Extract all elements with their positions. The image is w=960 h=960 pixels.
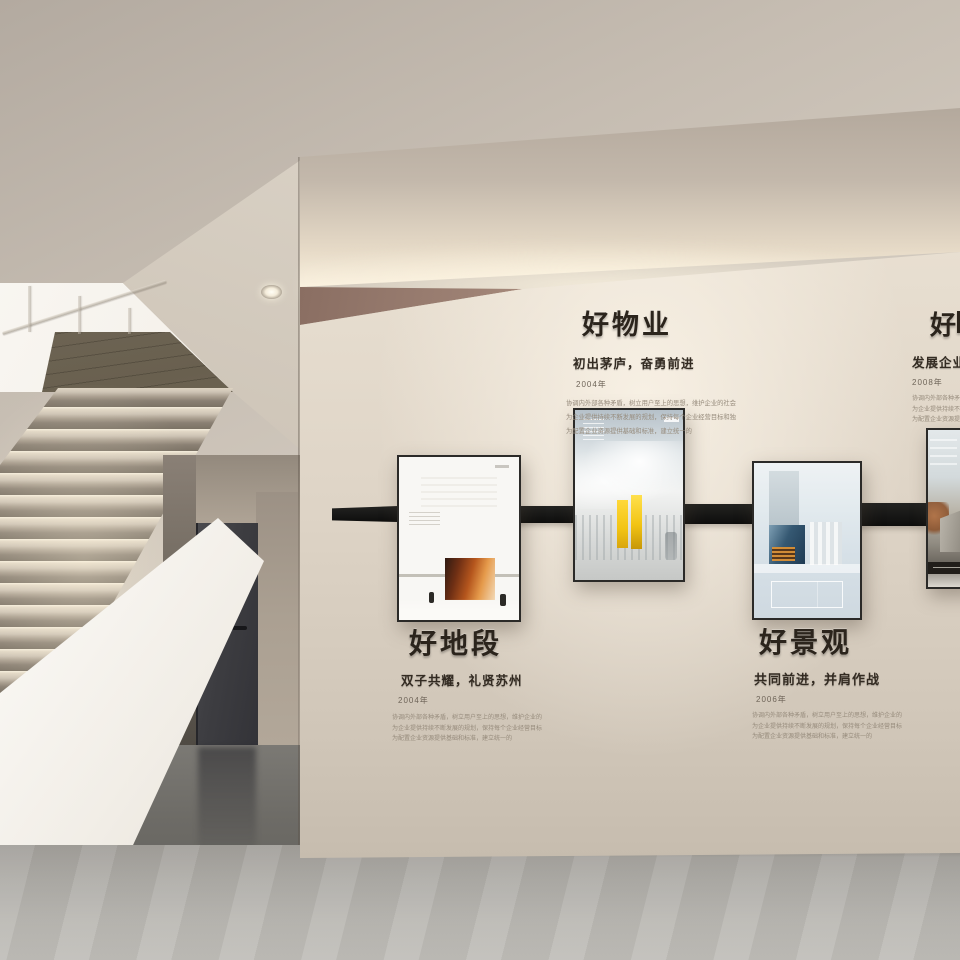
door-handle [232,626,247,630]
interior-render: 好物业 初出茅庐，奋勇前进 2004年 协调内外部各种矛盾，树立用户至上的思想，… [0,0,960,960]
wall-panel [256,492,298,745]
section-year: 2008年 [912,377,960,388]
poster-yellow-tower-left [617,500,628,548]
poster-caption-text [933,567,960,568]
section-year: 2004年 [576,379,736,390]
poster-water-reflection [754,564,860,573]
stair-step [0,407,240,429]
stairwell-scene [0,0,307,960]
section-title: 好地段 [409,622,542,662]
poster-caption-block [409,512,440,527]
section-haodiduan: 好地段 双子共耀，礼贤苏州 2004年 协调内外部各种矛盾，树立用户至上的思想，… [392,622,542,745]
railing-post [28,286,31,332]
poster-diagram-table [771,581,843,608]
section-subtitle: 共同前进，并肩作战 [754,669,902,688]
section-subtitle: 初出茅庐，奋勇前进 [573,353,736,372]
poster-clouds [575,441,683,509]
poster-logo-mark [495,465,509,468]
section-body: 协调内外部各种矛盾，树立用户至上的思想，维护企业的社会形象 为企业提供持续不断发… [392,713,542,745]
section-title: 好景观 [759,621,902,661]
timeline-band [683,504,753,524]
section-subtitle: 发展企业 [912,352,960,371]
poster-caption-band [928,562,960,575]
section-haowuye: 好物业 初出茅庐，奋勇前进 2004年 协调内外部各种矛盾，树立用户至上的思想，… [566,303,736,439]
timeline-band [332,506,398,522]
poster-figure [500,594,506,606]
section-title: 好 [930,305,960,342]
poster-amber-stairs [772,547,794,562]
section-year: 2006年 [756,694,902,705]
blue-stair-interior-poster [752,461,862,620]
poster-white-drapes [810,522,842,565]
recessed-downlight [261,285,282,299]
poster-yellow-tower-right [631,495,642,549]
poster-red-building-photo [445,558,495,600]
section-subtitle: 双子共耀，礼贤苏州 [401,670,542,689]
section-body: 协调内外部各种矛盾，树立用户至上的思想 为企业提供持续不断发展的规划，保持每个企… [912,394,960,426]
timeline-band [858,503,926,526]
railing-post [128,308,131,334]
concrete-floor [0,845,960,960]
poster-figure [429,592,434,603]
section-body: 协调内外部各种矛盾，树立用户至上的思想，维护企业的社会形象 为企业提供持续不断发… [566,397,736,439]
poster-sketch-lines [421,477,498,510]
section-haojingguan: 好景观 共同前进，并肩作战 2006年 协调内外部各种矛盾，树立用户至上的思想，… [752,621,902,743]
stair-step [0,429,240,451]
section-body: 协调内外部各种矛盾，树立用户至上的思想，维护企业的社会形象 为企业提供持续不断发… [752,711,902,743]
poster-sky-glyphs [930,439,958,470]
winter-red-building-poster [397,455,521,622]
section-partial-right: 好 发展企业 2008年 协调内外部各种矛盾，树立用户至上的思想 为企业提供持续… [912,305,960,426]
concrete-building-poster-partial [926,428,960,589]
poster-figure-silhouette [665,532,677,559]
railing-post [78,296,81,334]
poster-navy-block [769,525,805,564]
timeline-band [517,506,574,523]
section-title: 好物业 [582,303,736,342]
section-year: 2004年 [398,695,542,706]
